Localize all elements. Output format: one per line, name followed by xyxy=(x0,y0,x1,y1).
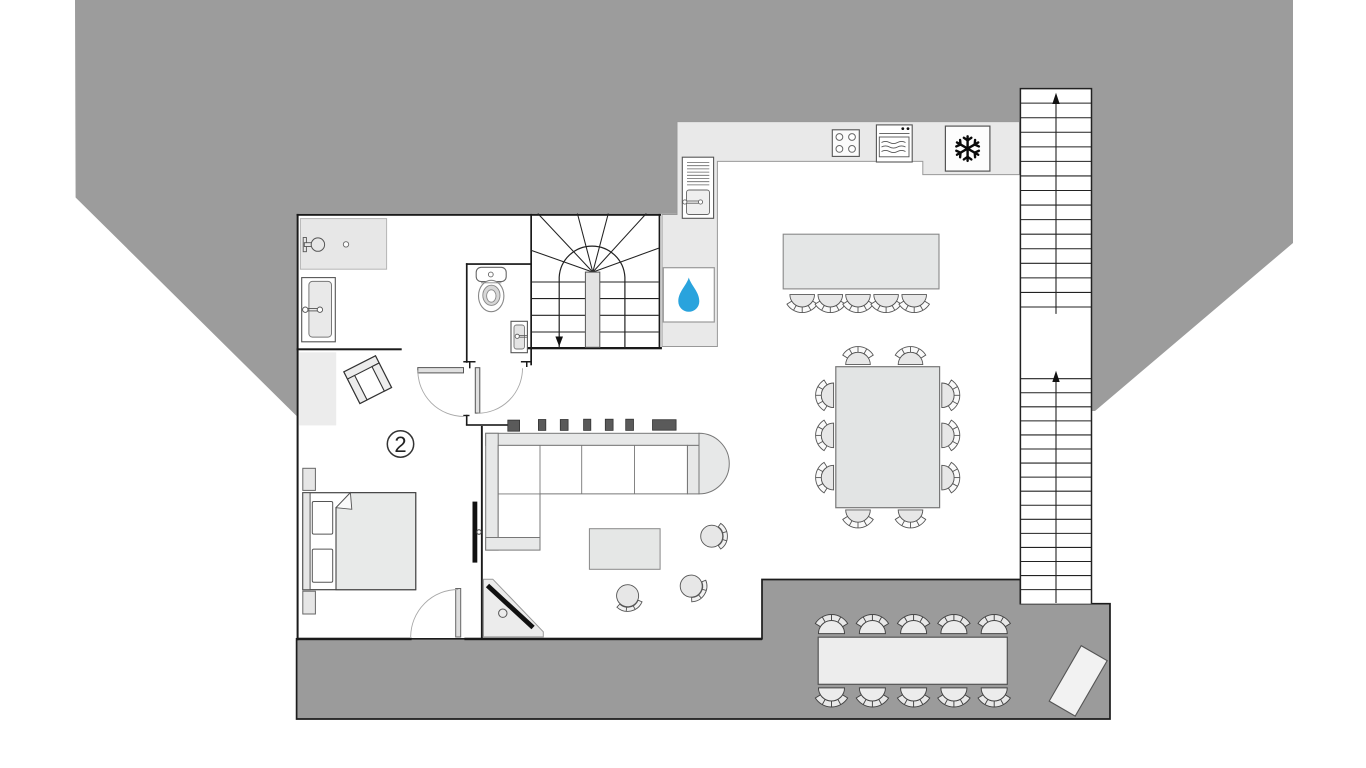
svg-text:2: 2 xyxy=(394,432,406,457)
